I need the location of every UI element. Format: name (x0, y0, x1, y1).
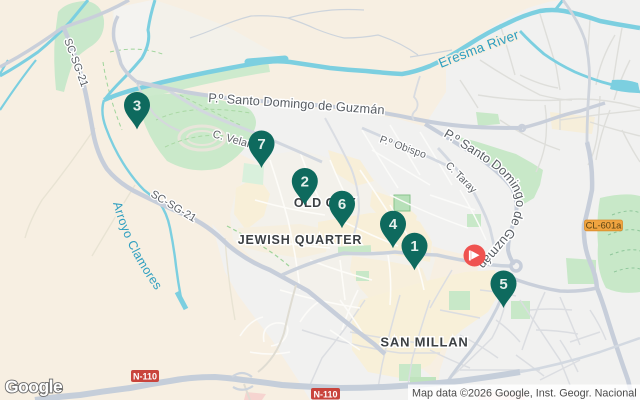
svg-text:JEWISH QUARTER: JEWISH QUARTER (238, 233, 362, 247)
svg-text:6: 6 (338, 196, 346, 213)
svg-text:2: 2 (301, 173, 309, 190)
svg-text:Map data ©2026 Google, Inst. G: Map data ©2026 Google, Inst. Geogr. Naci… (412, 387, 637, 399)
svg-text:SAN MILLAN: SAN MILLAN (380, 335, 468, 350)
svg-text:5: 5 (499, 276, 507, 293)
svg-text:1: 1 (410, 238, 418, 255)
svg-text:4: 4 (389, 216, 398, 233)
svg-text:CL-601a: CL-601a (586, 221, 622, 231)
svg-text:7: 7 (257, 136, 265, 153)
svg-text:N-110: N-110 (313, 389, 337, 399)
svg-text:3: 3 (133, 97, 141, 114)
svg-text:Google: Google (5, 377, 63, 397)
svg-text:N-110: N-110 (133, 372, 157, 382)
